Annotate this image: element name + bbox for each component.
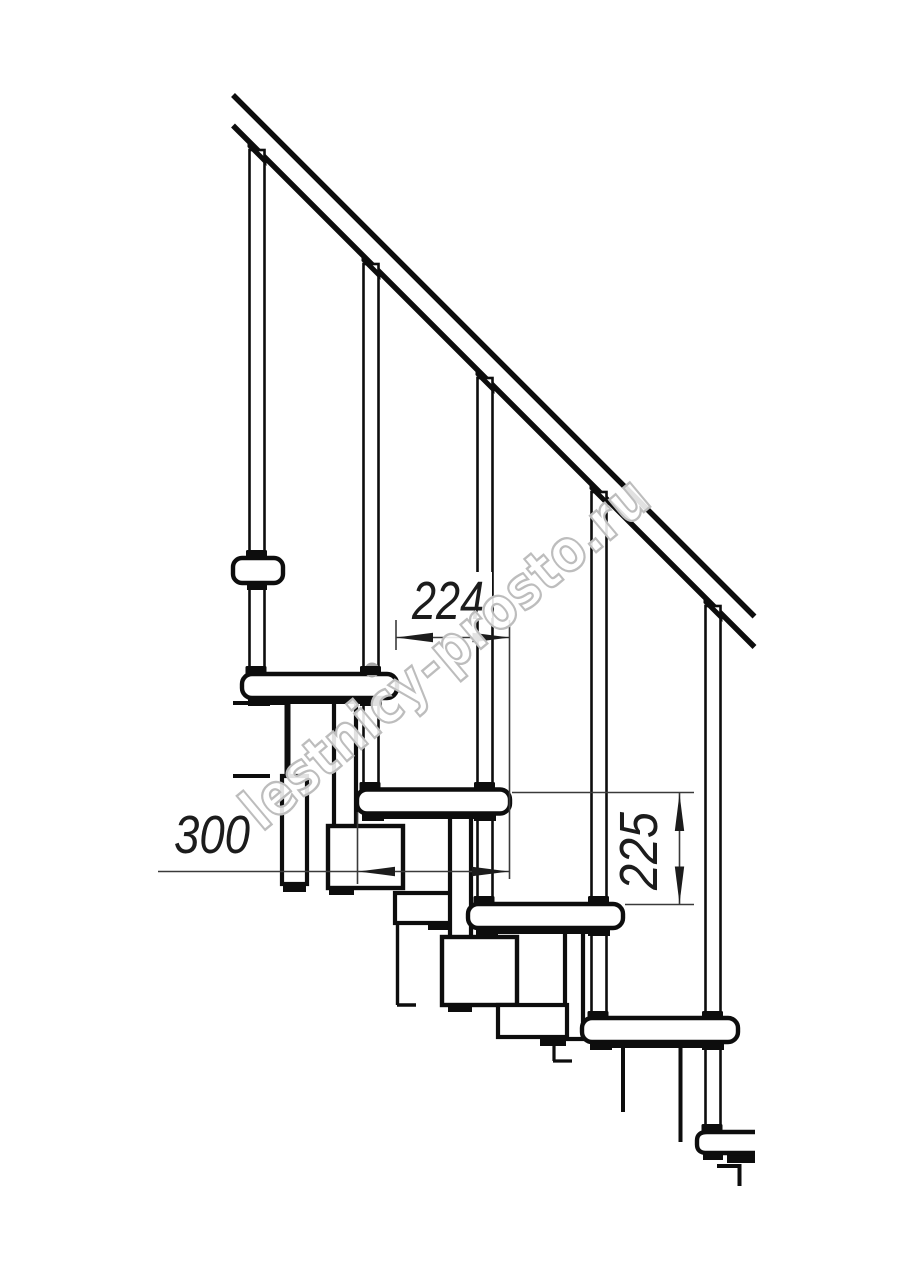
collar (474, 782, 495, 791)
collar (474, 896, 495, 905)
baluster-5 (706, 606, 721, 1133)
collar (702, 1011, 723, 1020)
module-box-3 (442, 937, 517, 1005)
module-box-2 (328, 826, 403, 888)
module-subbox-3 (498, 1005, 567, 1037)
under-tab (476, 928, 498, 936)
tread-5-partial (697, 1132, 755, 1153)
under-tab (248, 698, 270, 706)
tread-4 (582, 1018, 738, 1042)
collar (588, 1011, 609, 1020)
module-piece-5 (727, 1155, 755, 1163)
module-hanger-2 (397, 923, 416, 1005)
collar (360, 782, 381, 791)
under-tab (702, 1042, 724, 1050)
tread-0-end-view (233, 558, 283, 583)
module-box-2-tab (329, 888, 354, 895)
dim-label-rise: 225 (609, 811, 669, 891)
arrow-down (675, 867, 684, 904)
staircase-technical-drawing: 224 300 225 lestnicy-prosto.ru (0, 0, 914, 1280)
under-tab (474, 813, 496, 821)
drawing-page: 224 300 225 lestnicy-prosto.ru (0, 0, 914, 1280)
under-tab (247, 583, 267, 590)
under-band (496, 929, 590, 934)
collar (246, 550, 267, 559)
under-tab (590, 1042, 612, 1050)
module-foot-a1 (283, 884, 306, 892)
module-hook-3 (553, 1046, 572, 1061)
dim-label-tread-depth: 300 (174, 805, 250, 865)
under-band (610, 1043, 704, 1048)
under-tab (703, 1153, 723, 1160)
collar (246, 666, 267, 675)
tread-3 (468, 904, 623, 928)
collar (702, 1124, 723, 1133)
under-tab (588, 928, 610, 936)
module-piece-3 (540, 1038, 566, 1046)
under-tab (362, 813, 384, 821)
arrow-up (675, 794, 684, 831)
tread-2 (357, 790, 510, 814)
module-box-3-tab (448, 1005, 472, 1012)
dimensions: 224 300 225 (158, 571, 694, 905)
baluster-1 (250, 150, 265, 674)
under-band (382, 814, 476, 819)
collar (588, 896, 609, 905)
module-step-5 (717, 1166, 740, 1186)
